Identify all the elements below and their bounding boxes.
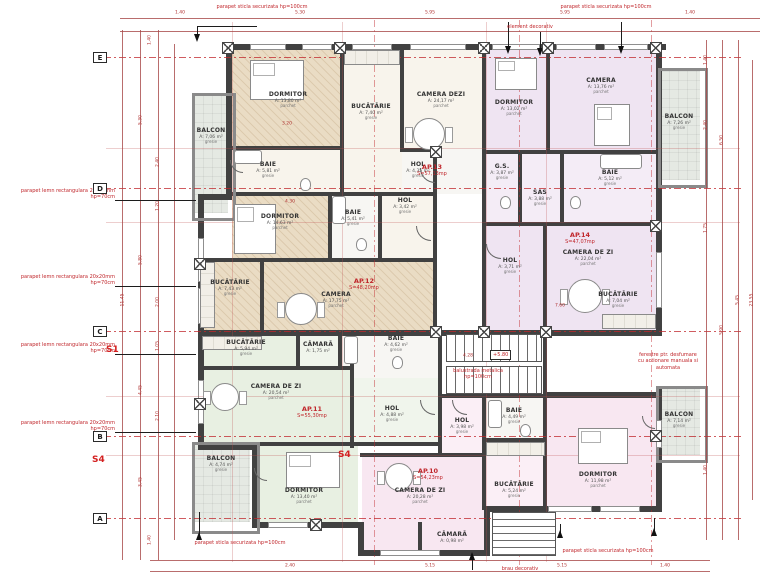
room-label-camera-ap12: CAMERAA: 17,75 m²parchet: [321, 292, 351, 308]
column-x-icon: [194, 398, 206, 410]
grid-row-marker-B: B: [93, 431, 107, 442]
window: [380, 550, 440, 556]
toilet-icon: [356, 238, 367, 251]
arrow-down-icon: [618, 46, 624, 54]
window: [302, 44, 332, 50]
window: [604, 44, 648, 50]
column-x-icon: [430, 146, 442, 158]
room-label-balcon-ap13: BALCONA: 7,06 m²gresie: [197, 128, 226, 144]
column-x-icon: [650, 42, 662, 54]
room-label-dormitor-ap13: DORMITORA: 13,80 m²parchet: [269, 92, 307, 108]
wall: [418, 522, 422, 552]
dining-table-icon: [285, 293, 317, 325]
kitchen-counter-icon: [486, 442, 545, 456]
floor-plan: BALCONA: 7,06 m²gresie DORMITORA: 13,80 …: [0, 0, 770, 578]
room-label-gs-ap14: G.S.A: 3,87 m²gresie: [490, 164, 514, 180]
room-label-camara-ap10: CĂMARĂA: 0,98 m²: [437, 532, 467, 544]
dimension-label: 2.00: [156, 297, 161, 307]
bed-icon: [286, 452, 340, 488]
grid-line-D: [104, 188, 744, 189]
column-x-icon: [478, 42, 490, 54]
dimension-label: 1.40: [175, 11, 185, 16]
window: [410, 44, 466, 50]
annotation-smoke-windows: ferestre ptr. desfumare cu actionare man…: [638, 352, 698, 371]
room-label-dormitor-ap10: DORMITORA: 11,98 m²parchet: [579, 472, 617, 488]
room-label-bucatarie-ap12: BUCĂTĂRIEA: 7,43 m²gresie: [210, 280, 250, 296]
construction-line: [106, 222, 740, 223]
room-fill-bucatarie-ap13: [342, 48, 402, 194]
room-label-hol-ap11: HOLA: 4,88 m²gresie: [380, 406, 404, 422]
toilet-icon: [570, 196, 581, 209]
bathtub-icon: [344, 336, 358, 364]
room-label-camara-ap11: CĂMARĂA: 1,75 m²: [303, 342, 333, 354]
dimension-label: 11.45: [121, 294, 126, 307]
room-label-balcon-ap10: BALCONA: 7,14 m²gresie: [665, 412, 694, 428]
kitchen-counter-icon: [602, 314, 656, 329]
wall: [198, 366, 352, 370]
column-x-icon: [430, 326, 442, 338]
column-x-icon: [650, 220, 662, 232]
annotation-balustrade: balustrada metalica hp=100cm: [445, 368, 511, 381]
column-x-icon: [650, 430, 662, 442]
bathtub-icon: [600, 154, 642, 169]
apartment-label-ap13: AP.13S=57,13mp: [417, 163, 447, 177]
bed-icon: [594, 104, 630, 146]
section-mark-s4: S4: [92, 455, 105, 465]
arrow-up-icon: [469, 552, 475, 560]
window: [556, 44, 596, 50]
room-label-bucatarie-ap13: BUCĂTĂRIEA: 7,40 m²gresie: [351, 104, 391, 120]
room-label-sas-ap14: SASA: 3,88 m²gresie: [528, 190, 552, 206]
leader-line: [115, 286, 196, 287]
dimension-line: [752, 60, 753, 500]
dimension-line: [174, 44, 175, 540]
grid-row-marker-D: D: [93, 183, 107, 194]
room-label-cameradezi-ap10: CAMERA DE ZIA: 20,28 m²parchet: [395, 488, 446, 504]
balcony-parapet: [192, 93, 236, 221]
bathtub-icon: [488, 400, 502, 428]
leader-line: [115, 354, 196, 355]
dimension-label: 5.15: [425, 564, 435, 569]
dimension-label: 1.40: [148, 35, 153, 45]
wall: [484, 506, 490, 556]
construction-line: [106, 455, 740, 456]
annotation-glass-parapet-bottom-right: parapet sticla securizata hp=100cm: [553, 548, 663, 554]
construction-line: [486, 22, 487, 562]
room-label-camera-ap14: CAMERAA: 13,76 m²parchet: [586, 78, 616, 94]
wall: [296, 330, 300, 368]
toilet-icon: [300, 178, 311, 191]
annotation-glass-parapet-top-right: parapet sticla securizata hp=100cm: [551, 4, 661, 10]
column-x-icon: [194, 258, 206, 270]
dimension-label: 1.40: [660, 564, 670, 569]
construction-line: [546, 22, 547, 562]
column-x-icon: [334, 42, 346, 54]
bed-icon: [495, 58, 537, 90]
room-label-balcon-ap14: BALCONA: 7,26 m²gresie: [665, 114, 694, 130]
grid-line-C: [104, 331, 744, 332]
dimension-label: 5.30: [139, 115, 144, 125]
dining-table-icon: [568, 279, 602, 313]
room-label-hol-ap12: HOLA: 3,42 m²gresie: [393, 198, 417, 214]
bed-icon: [578, 428, 628, 464]
dimension-label: 6.50: [720, 135, 725, 145]
room-label-dormitor-ap12: DORMITORA: 14,63 m²parchet: [261, 214, 299, 230]
column-x-icon: [542, 42, 554, 54]
window: [492, 44, 540, 50]
grid-row-marker-E: E: [93, 52, 107, 63]
room-fill-hol-ap14: [486, 222, 545, 330]
grid-line-A: [104, 518, 744, 519]
annotation-wood-parapet-2: parapet lemn rectangulara 20x20mm hp=70c…: [20, 274, 115, 287]
room-label-hol-ap10: HOLA: 3,98 m²gresie: [450, 418, 474, 434]
leader-line: [115, 432, 196, 433]
dimension-label: 5.30: [295, 11, 305, 16]
wall: [545, 392, 662, 398]
dimension-line: [722, 40, 723, 540]
arrow-down-icon: [194, 34, 200, 42]
leader-line: [472, 560, 473, 570]
wall: [232, 192, 433, 196]
dimension-label: 5.90: [720, 325, 725, 335]
dimension-label: 4.30: [285, 200, 295, 205]
dimension-label: 23.55: [750, 294, 755, 307]
apartment-label-ap12: AP.12S=48,20mp: [349, 277, 379, 291]
kitchen-counter-icon: [344, 50, 400, 65]
toilet-icon: [392, 356, 403, 369]
room-label-baie-ap11: BAIEA: 4,62 m²gresie: [384, 336, 408, 352]
window: [656, 252, 662, 308]
room-label-bucatarie-ap10: BUCĂTĂRIEA: 5,24 m²gresie: [494, 482, 534, 498]
section-mark-s4-plan: S4: [338, 450, 351, 460]
wall: [260, 260, 264, 330]
room-label-bucatarie-ap11: BUCĂTĂRIEA: 5,94 m²gresie: [226, 340, 266, 356]
annotation-wood-parapet-3: parapet lemn rectangulara 20x20mm hp=70c…: [20, 342, 115, 355]
leader-line: [621, 22, 622, 48]
dimension-label: 1.20: [156, 201, 161, 211]
annotation-glass-parapet-bottom-left: parapet sticla securizata hp=100cm: [185, 540, 295, 546]
dimension-label: 2.40: [285, 564, 295, 569]
dimension-label: 2.40: [156, 157, 161, 167]
window: [600, 506, 640, 512]
dimension-label: 5.95: [560, 11, 570, 16]
dimension-label: 3.45: [139, 477, 144, 487]
toilet-icon: [500, 196, 511, 209]
dimension-label: 1.40: [148, 535, 153, 545]
arrow-up-icon: [557, 530, 563, 538]
grid-row-marker-C: C: [93, 326, 107, 337]
dimension-label: 5.95: [425, 11, 435, 16]
column-x-icon: [310, 519, 322, 531]
dimension-line: [150, 560, 710, 561]
apartment-label-ap11: AP.11S=55,30mp: [297, 405, 327, 419]
window: [250, 44, 286, 50]
annotation-glass-parapet-top-left: parapet sticla securizata hp=100cm: [207, 4, 317, 10]
dimension-line: [150, 571, 710, 572]
room-label-cameradezi-ap14: CAMERA DE ZIA: 22,04 m²parchet: [563, 250, 614, 266]
dimension-label: 3.20: [282, 122, 292, 127]
grid-line-B: [104, 436, 744, 437]
dimension-label: 4.45: [139, 385, 144, 395]
wall: [198, 258, 433, 262]
arrow-up-icon: [196, 532, 202, 540]
room-label-cameradezi-ap11: CAMERA DE ZIA: 20,54 m²parchet: [251, 384, 302, 400]
toilet-icon: [520, 424, 531, 437]
room-label-cameradezi-ap13: CAMERA DEZIA: 24,17 m²parchet: [417, 92, 465, 108]
construction-line: [106, 396, 740, 397]
room-label-bucatarie-ap14: BUCĂTĂRIEA: 7,04 m²gresie: [598, 292, 638, 308]
dimension-label: 7.60: [555, 304, 565, 309]
dimension-label: 1.75: [704, 223, 709, 233]
dimension-label: 1.05: [156, 341, 161, 351]
wall: [400, 48, 404, 150]
apartment-label-ap14: AP.14S=47,07mp: [565, 231, 595, 245]
room-label-baie-ap14: BAIEA: 5,12 m²gresie: [598, 170, 622, 186]
wall: [378, 194, 382, 260]
room-label-baie-ap10: BAIEA: 4,49 m²gresie: [502, 408, 526, 424]
dimension-label: 5.15: [557, 564, 567, 569]
leader-line: [197, 26, 257, 27]
dimension-label: 1.40: [685, 11, 695, 16]
dimension-label: 5.45: [736, 295, 741, 305]
room-label-dormitor-ap11: DORMITORA: 13,40 m²parchet: [285, 488, 323, 504]
dimension-line: [158, 30, 159, 560]
dimension-line: [120, 31, 760, 32]
dimension-label: 2.40: [704, 120, 709, 130]
column-x-icon: [540, 326, 552, 338]
dimension-label: 1.40: [704, 465, 709, 475]
grid-line-v3: [651, 20, 652, 565]
dimension-label: 5.80: [139, 255, 144, 265]
annotation-element-decorativ: element decorativ: [495, 24, 565, 30]
window: [268, 522, 308, 528]
level-marker: +5.80: [490, 350, 511, 360]
dimension-line: [120, 18, 760, 19]
room-fill-sas-ap14: [520, 152, 562, 222]
column-x-icon: [222, 42, 234, 54]
grid-line-v1: [374, 20, 375, 565]
grid-row-marker-A: A: [93, 513, 107, 524]
arrow-down-icon: [505, 46, 511, 54]
room-label-dormitor-ap14: DORMITORA: 13,02 m²parchet: [495, 100, 533, 116]
grid-line-E: [104, 57, 744, 58]
room-label-hol-ap14: HOLA: 3,71 m²gresie: [498, 258, 522, 274]
arrow-up-icon: [651, 528, 657, 536]
room-label-baie-ap12: BAIEA: 5,41 m²gresie: [341, 210, 365, 226]
dimension-line: [738, 40, 739, 540]
dimension-label: 1.40: [704, 55, 709, 65]
annotation-brau-decorativ: brau decorativ: [480, 566, 560, 572]
room-label-baie-ap13: BAIEA: 5,81 m²gresie: [256, 162, 280, 178]
dimension-label: 2.10: [156, 411, 161, 421]
column-x-icon: [478, 326, 490, 338]
apartment-label-ap10: AP.10S=54,23mp: [413, 467, 443, 481]
dimension-label: 4.28: [463, 354, 473, 359]
section-mark-s1: S1: [106, 345, 119, 355]
wall: [438, 330, 442, 456]
entrance-steps: [492, 512, 556, 556]
room-label-balcon-ap11: BALCONA: 4,74 m²gresie: [207, 456, 236, 472]
dining-table-icon: [211, 383, 239, 411]
